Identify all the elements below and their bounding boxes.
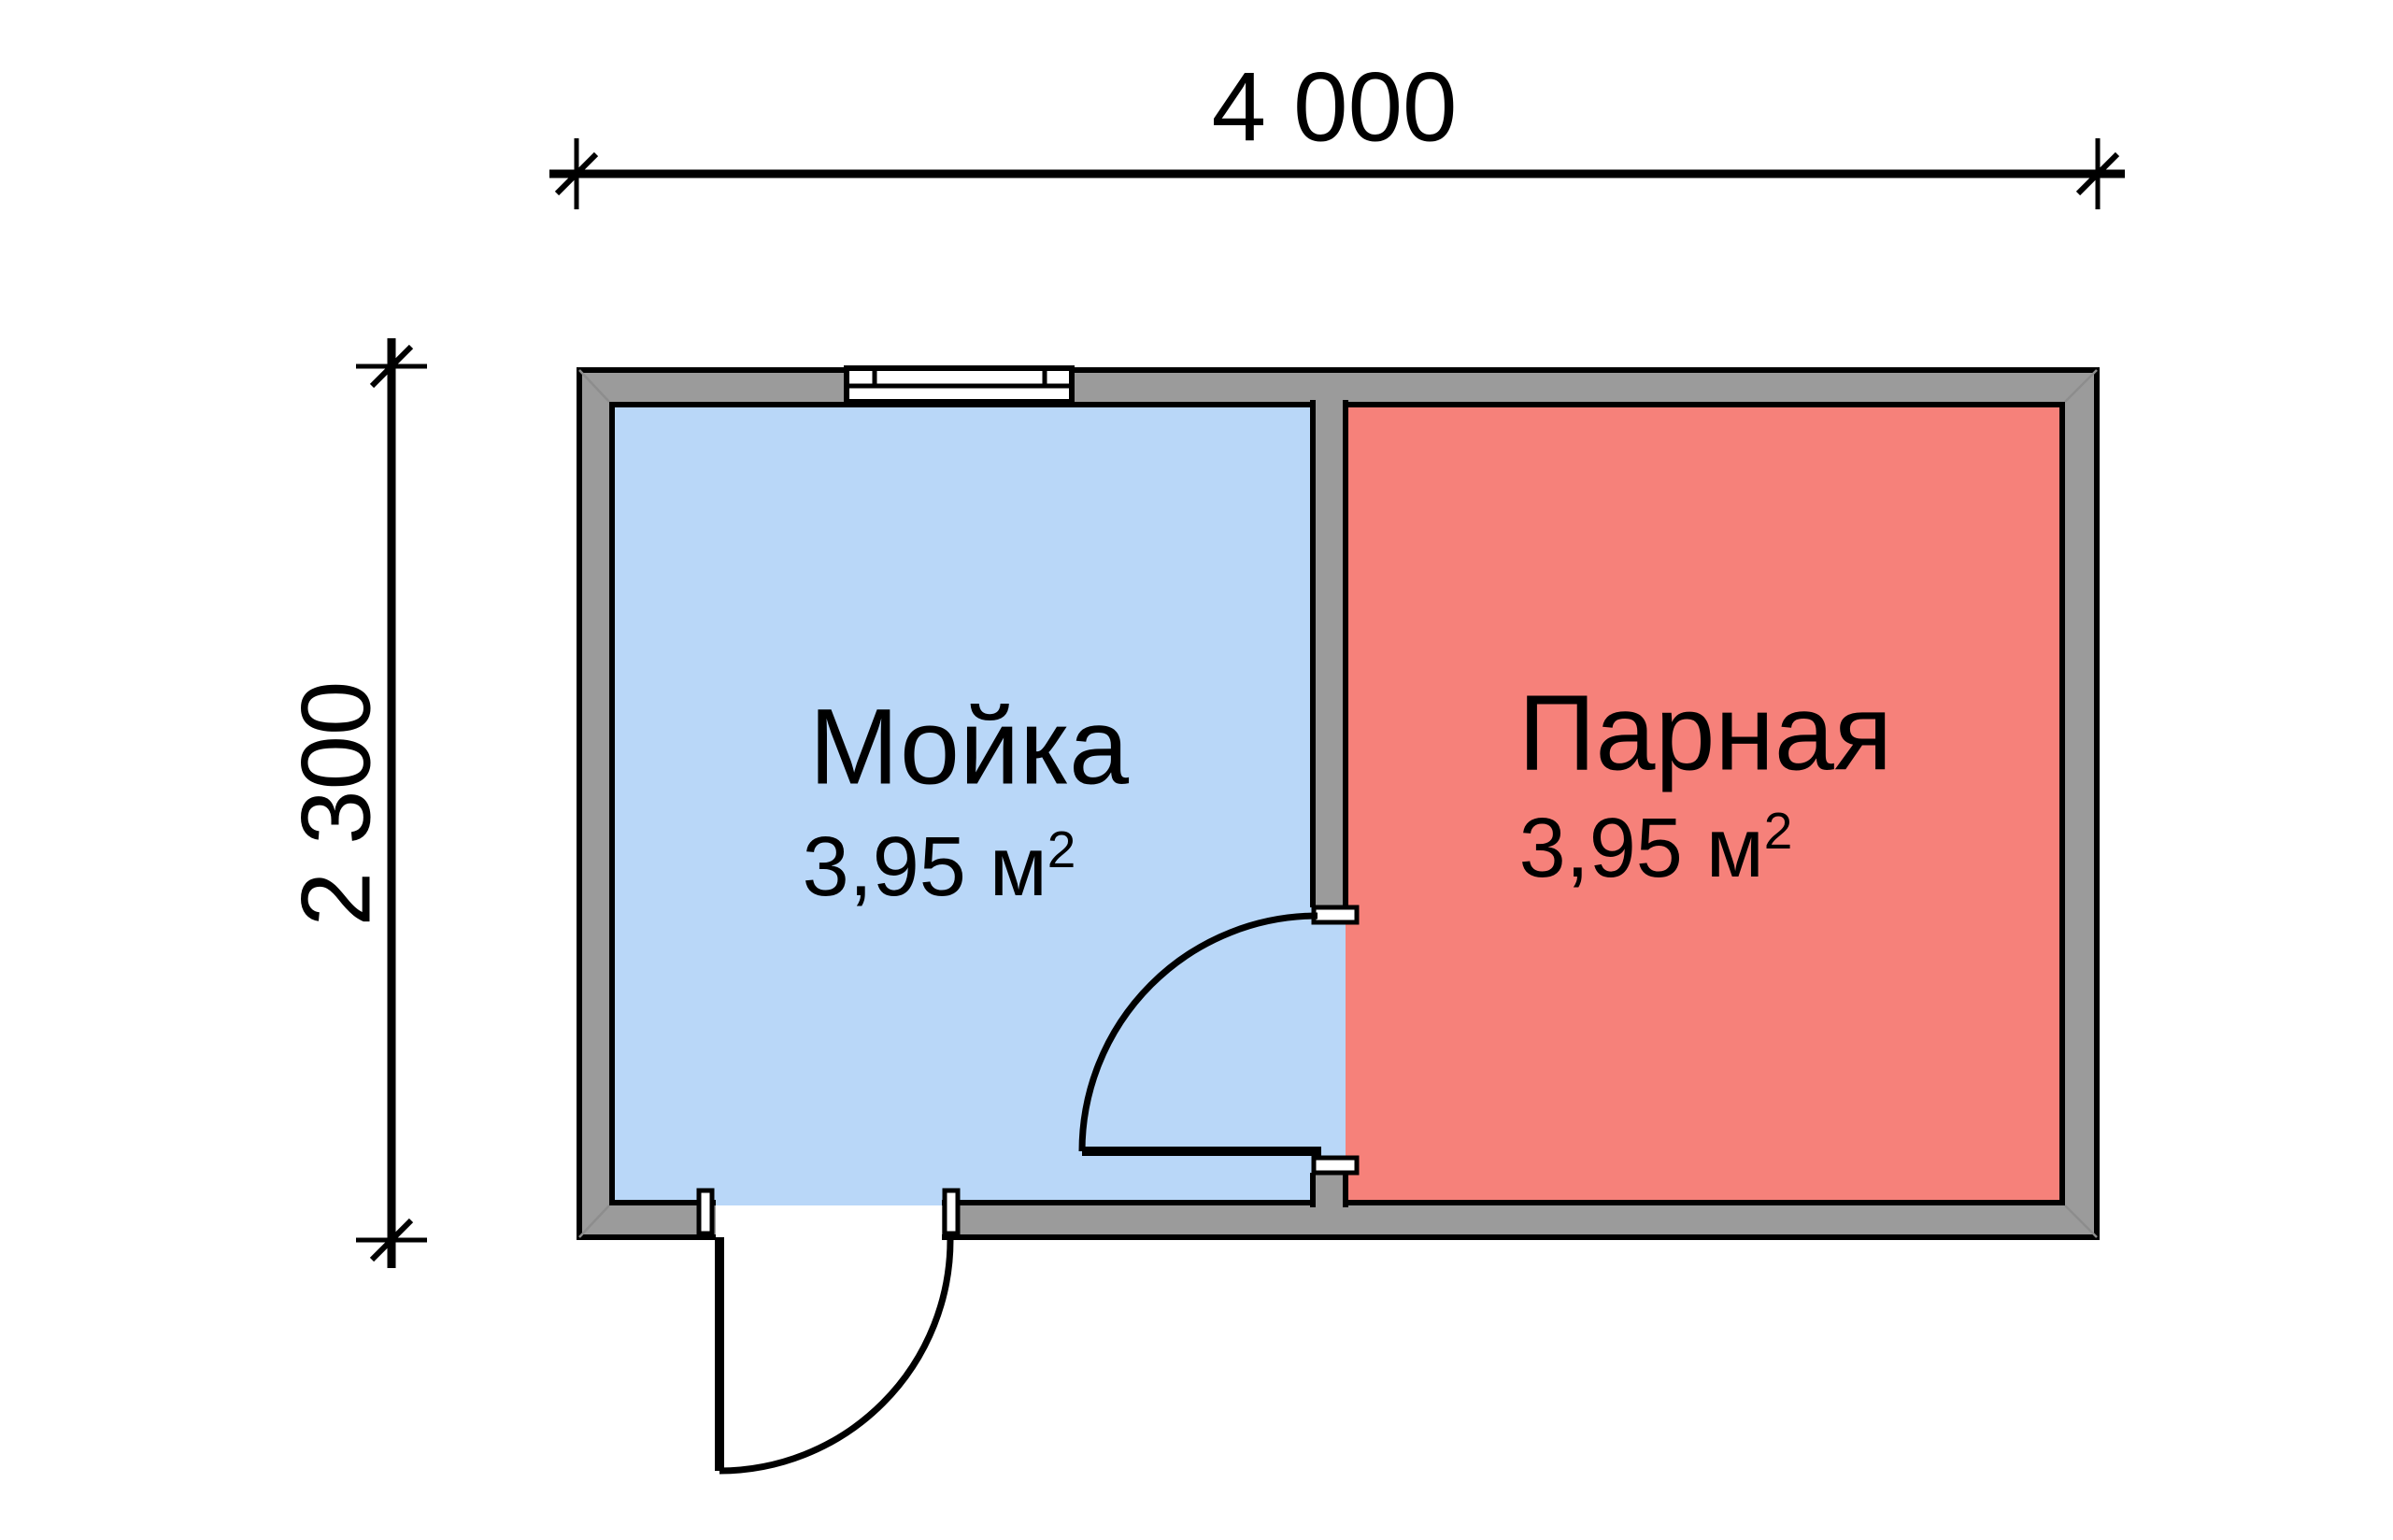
partition-wall-upper: [1313, 374, 1346, 907]
partition-wall-lower: [1313, 1173, 1346, 1210]
room-area-moyka: 3,95 м2: [803, 825, 1076, 909]
exterior-door-jamb: [945, 1191, 958, 1233]
window: [847, 368, 1072, 402]
dimension-width-label: 4 000: [1212, 59, 1458, 157]
room-name-parnaya: Парная: [1518, 680, 1892, 788]
room-area-value: 3,95 м: [803, 820, 1047, 914]
room-area-parnaya: 3,95 м2: [1519, 806, 1793, 891]
room-area-value: 3,95 м: [1519, 802, 1764, 895]
floor-plan: 4 000 2 300 Мойка 3,95 м2 Парная 3,95 м2: [0, 0, 2393, 1540]
room-area-superscript: 2: [1764, 802, 1793, 860]
interior-door-jamb: [1314, 1158, 1357, 1173]
dimension-height-label: 2 300: [288, 681, 386, 927]
exterior-door-jamb: [699, 1191, 712, 1233]
room-area-superscript: 2: [1047, 820, 1076, 878]
exterior-door-threshold: [716, 1200, 942, 1205]
interior-door-jamb: [1314, 907, 1357, 922]
room-name-moyka: Мойка: [809, 694, 1129, 802]
exterior-door-opening: [716, 1200, 942, 1248]
exterior-door-swing-arc: [719, 1240, 950, 1471]
